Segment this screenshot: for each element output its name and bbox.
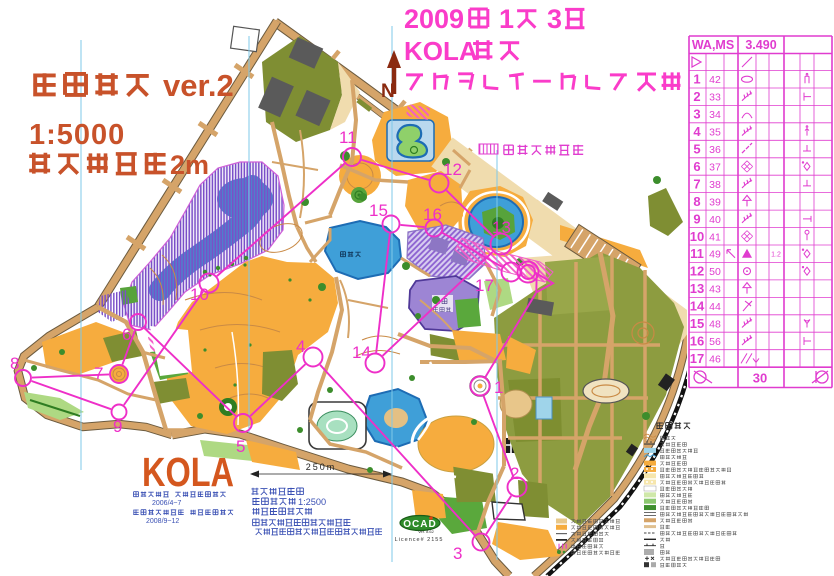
svg-text:56: 56 [709, 336, 721, 348]
svg-text:WA,MS: WA,MS [692, 38, 734, 52]
svg-text:42: 42 [709, 74, 721, 86]
svg-text:34: 34 [709, 109, 721, 121]
svg-text:39: 39 [709, 196, 721, 208]
svg-text:15: 15 [690, 316, 704, 331]
svg-text:10: 10 [190, 285, 209, 304]
svg-text:40: 40 [709, 214, 721, 226]
svg-text:14: 14 [352, 343, 371, 362]
svg-text:7: 7 [94, 364, 103, 383]
svg-text:1:5000: 1:5000 [29, 119, 125, 151]
svg-text:3.490: 3.490 [745, 38, 776, 52]
svg-text:KOLA: KOLA [142, 449, 234, 495]
svg-text:13: 13 [690, 281, 704, 296]
svg-text:46: 46 [709, 353, 721, 365]
svg-text:4: 4 [296, 337, 305, 356]
svg-text:50: 50 [709, 266, 721, 278]
svg-text:9: 9 [113, 417, 122, 436]
svg-text:6: 6 [122, 325, 131, 344]
svg-text:12: 12 [690, 264, 704, 279]
svg-text:ver.2: ver.2 [163, 68, 234, 103]
svg-text:35: 35 [709, 127, 721, 139]
svg-text:KOLA: KOLA [404, 36, 478, 66]
svg-text:8: 8 [693, 194, 700, 209]
svg-text:11: 11 [690, 246, 704, 261]
svg-text:11: 11 [339, 128, 357, 147]
svg-text:49: 49 [709, 249, 721, 261]
svg-text:1: 1 [494, 378, 503, 397]
svg-text:2: 2 [510, 464, 519, 483]
svg-text:16: 16 [423, 205, 442, 224]
svg-text:Ver. 8.62: Ver. 8.62 [418, 529, 435, 534]
svg-text:1: 1 [693, 72, 700, 87]
svg-text:37: 37 [709, 161, 721, 173]
svg-text:13: 13 [492, 218, 511, 237]
svg-text:6: 6 [693, 159, 700, 174]
svg-text:3: 3 [693, 107, 700, 122]
svg-text:Licence# 2155: Licence# 2155 [395, 537, 444, 543]
svg-text:36: 36 [709, 144, 721, 156]
svg-text:1.2: 1.2 [771, 252, 781, 259]
svg-text:41: 41 [709, 231, 721, 243]
svg-text:3: 3 [453, 544, 462, 563]
svg-text:43: 43 [709, 284, 721, 296]
svg-text:4: 4 [693, 124, 701, 139]
svg-text:1:2500: 1:2500 [298, 497, 326, 507]
svg-text:1: 1 [499, 4, 514, 34]
svg-text:44: 44 [709, 301, 721, 313]
svg-text:15: 15 [369, 201, 388, 220]
svg-text:48: 48 [709, 319, 721, 331]
svg-text:7: 7 [693, 176, 700, 191]
svg-text:2009: 2009 [404, 4, 464, 34]
svg-text:17: 17 [690, 351, 704, 366]
svg-text:33: 33 [709, 92, 721, 104]
svg-text:17: 17 [475, 276, 494, 295]
svg-text:10: 10 [690, 229, 704, 244]
svg-text:2m: 2m [170, 150, 209, 180]
svg-text:2006/4~7: 2006/4~7 [152, 500, 181, 507]
svg-text:3: 3 [547, 4, 562, 34]
svg-text:38: 38 [709, 179, 721, 191]
svg-text:5: 5 [236, 437, 245, 456]
svg-text:9: 9 [693, 211, 700, 226]
svg-text:2: 2 [693, 89, 700, 104]
svg-text:5: 5 [693, 142, 700, 157]
svg-text:14: 14 [690, 299, 705, 314]
svg-text:30: 30 [753, 370, 767, 385]
svg-text:12: 12 [443, 160, 462, 179]
svg-text:2008/9~12: 2008/9~12 [146, 518, 179, 525]
svg-text:250m: 250m [306, 462, 337, 472]
svg-text:8: 8 [10, 354, 19, 373]
svg-text:16: 16 [690, 333, 704, 348]
svg-text:N: N [381, 81, 395, 102]
